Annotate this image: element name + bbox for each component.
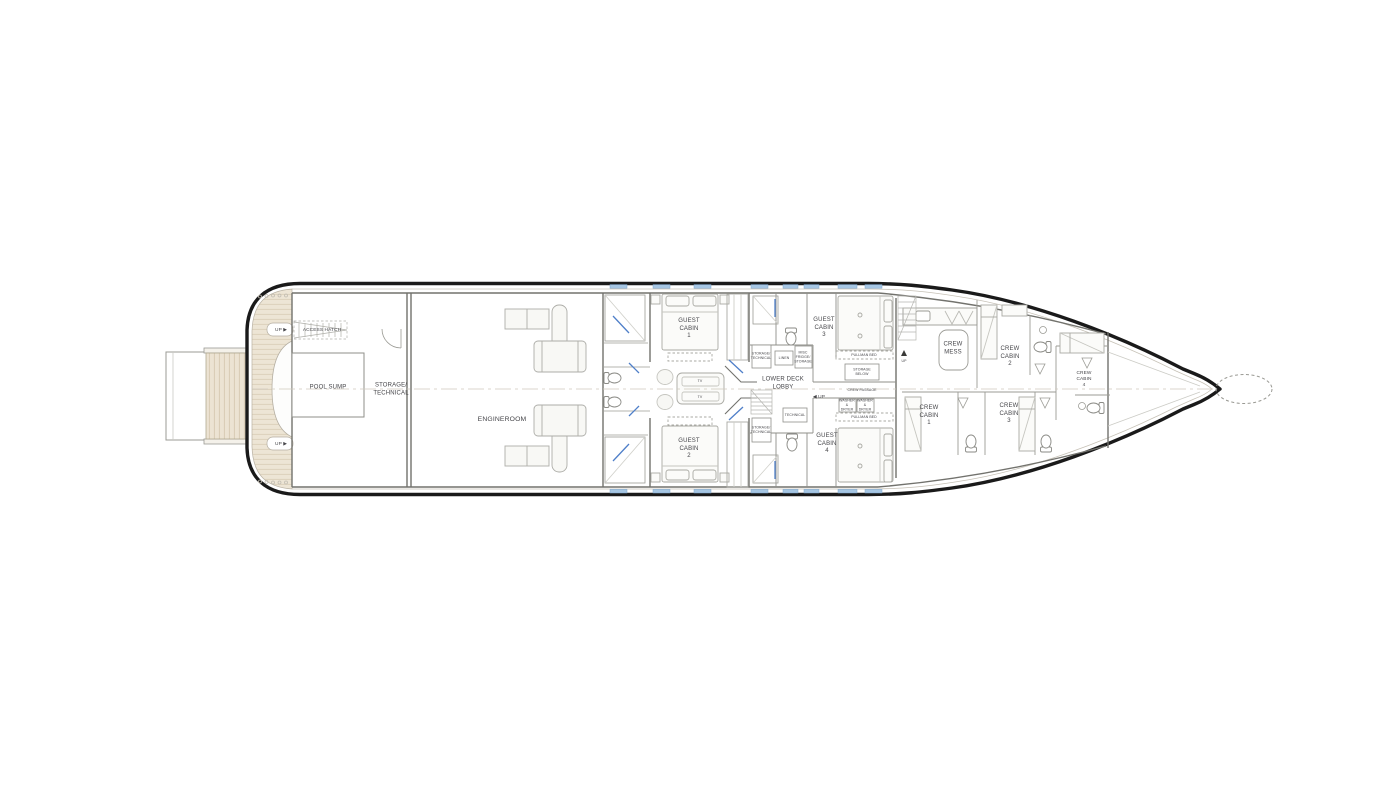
deck-plan-drawing [0,0,1400,788]
guest-cabin-3-furniture [836,296,893,359]
swim-platform [166,348,250,444]
bulbous-bow-outline [1216,375,1272,404]
lower-deck-plan: UP ▶ UP ▶ ACCESS HATCH POOL SUMP STORAGE… [0,0,1400,788]
pool-sump-room [292,353,364,417]
